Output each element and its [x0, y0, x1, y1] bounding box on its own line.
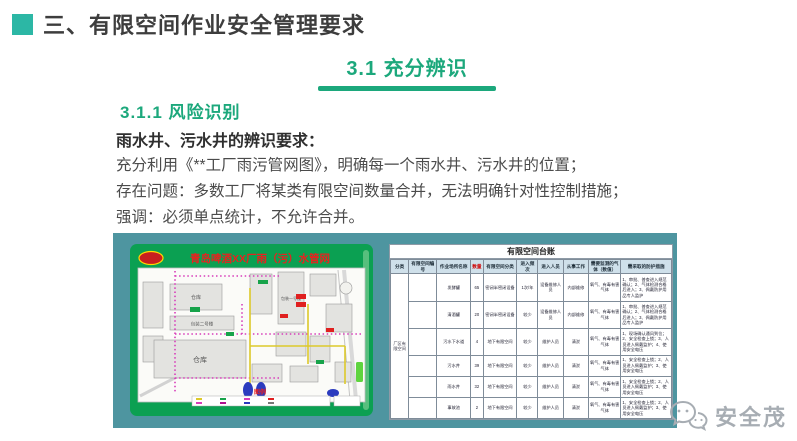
slide-header: 三、有限空间作业安全管理要求: [12, 8, 365, 40]
table-cell: 设备维修人员: [538, 301, 563, 328]
table-cell: 氧气、有毒有害气体: [589, 274, 621, 301]
ledger-col-header: 从事工作: [563, 260, 588, 274]
table-row: 事故池2地下有限空间较少维护人员清淤氧气、有毒有害气体1、安全检查上锁；2、人员…: [391, 397, 672, 418]
table-cell: [409, 355, 437, 376]
ledger-col-header: 作业场所名称: [437, 260, 471, 274]
table-cell: 65: [471, 274, 484, 301]
table-cell: 清淤: [563, 376, 588, 397]
table-row: 雨水井32地下有限空间较少维护人员清淤氧气、有毒有害气体1、安全检查上锁；2、人…: [391, 376, 672, 397]
table-cell: [409, 274, 437, 301]
table-cell: [409, 376, 437, 397]
ledger-col-header: 需要监测的气体（数值）: [589, 260, 621, 274]
table-cell: 1次/年: [517, 274, 538, 301]
chat-bubbles-icon: [669, 399, 709, 433]
table-cell: 污水下水道: [437, 328, 471, 355]
table-cell: 较少: [517, 328, 538, 355]
table-cell: 2: [471, 397, 484, 418]
table-cell: 较少: [517, 355, 538, 376]
table-row: 清酒罐20密闭半密闭设备较少设备维修人员内部维修氧气、有毒有害气体1、审批、普查…: [391, 301, 672, 328]
ledger-col-header: 分类: [391, 260, 409, 274]
ledger-col-header: 进入人员: [538, 260, 563, 274]
legend-box: [192, 396, 330, 406]
slide-title: 三、有限空间作业安全管理要求: [43, 8, 365, 40]
table-row: 污水井39地下有限空间较少维护人员清淤氧气、有毒有害气体1、安全检查上锁；2、人…: [391, 355, 672, 376]
title-bullet-square: [12, 14, 33, 35]
table-cell: 维护人员: [538, 355, 563, 376]
subsection-title: 3.1.1 风险识别: [120, 98, 706, 123]
image-panel: 青岛啤酒XX厂雨（污）水管网: [113, 233, 677, 428]
ledger-header-row: 分类有限空间编号作业场所名称数量有限空间分类进入频次进入人员从事工作需要监测的气…: [391, 260, 672, 274]
table-cell: 1、安全检查上锁；2、人员进入佩戴监护；3、使用安全电压: [621, 355, 672, 376]
table-row: 污水下水道4地下有限空间较少维护人员清淤氧气、有毒有害气体1、现场确认通风到位；…: [391, 328, 672, 355]
table-cell: 32: [471, 376, 484, 397]
map-title: 青岛啤酒XX厂雨（污）水管网: [190, 252, 330, 265]
table-cell: 雨水井: [437, 376, 471, 397]
table-cell: 清酒罐: [437, 301, 471, 328]
table-cell: 清淤: [563, 397, 588, 418]
legend-title: 图例: [254, 388, 266, 396]
table-cell: 维护人员: [538, 328, 563, 355]
factory-map-svg: 青岛啤酒XX厂雨（污）水管网: [130, 244, 373, 416]
table-cell: [409, 301, 437, 328]
ledger-table: 有限空间台账 分类有限空间编号作业场所名称数量有限空间分类进入频次进入人员从事工…: [389, 244, 673, 420]
table-cell: 地下有限空间: [483, 376, 517, 397]
table-cell: 39: [471, 355, 484, 376]
table-cell: 密闭半密闭设备: [483, 301, 517, 328]
table-cell: 1、审批、普查进入规范确认；2、气体检测合格后进入；3、佩戴防护用品专人监护: [621, 301, 672, 328]
body-line: 强调：必须单点统计，不允许合并。: [116, 205, 706, 231]
brand-footer: 安全茂: [669, 399, 787, 433]
building-label: 仓库: [191, 294, 201, 301]
table-cell: 20: [471, 301, 484, 328]
table-row: 厂区有限空间发酵罐65密闭半密闭设备1次/年设备维修人员内部维修氧气、有毒有害气…: [391, 274, 672, 301]
section-underline: [318, 86, 496, 91]
table-cell: 氧气、有毒有害气体: [589, 301, 621, 328]
table-cell: 污水井: [437, 355, 471, 376]
category-cell: 厂区有限空间: [391, 274, 409, 419]
table-cell: 较少: [517, 376, 538, 397]
table-cell: [409, 328, 437, 355]
table-cell: 1、安全检查上锁；2、人员进入佩戴监护；3、使用安全电压: [621, 397, 672, 418]
table-cell: 地下有限空间: [483, 355, 517, 376]
ledger-col-header: 有限空间编号: [409, 260, 437, 274]
table-cell: 密闭半密闭设备: [483, 274, 517, 301]
table-cell: 1、审批、普查进入规范确认；2、气体检测合格后进入；3、佩戴防护用品专人监护: [621, 274, 672, 301]
building-label: 仓库: [193, 355, 207, 364]
body-block: 3.1.1 风险识别 雨水井、污水井的辨识要求： 充分利用《**工厂雨污管网图》…: [116, 98, 706, 231]
table-cell: 较少: [517, 301, 538, 328]
table-cell: 设备维修人员: [538, 274, 563, 301]
table-cell: 4: [471, 328, 484, 355]
body-lead: 雨水井、污水井的辨识要求：: [116, 127, 706, 151]
ledger-grid: 分类有限空间编号作业场所名称数量有限空间分类进入频次进入人员从事工作需要监测的气…: [390, 259, 672, 419]
building-label: 包装二号楼: [191, 321, 214, 328]
ledger-col-header: 进入频次: [517, 260, 538, 274]
table-cell: 氧气、有毒有害气体: [589, 328, 621, 355]
table-cell: 发酵罐: [437, 274, 471, 301]
factory-map-image: 青岛啤酒XX厂雨（污）水管网: [130, 244, 373, 416]
table-cell: 清淤: [563, 355, 588, 376]
table-cell: 较少: [517, 397, 538, 418]
table-cell: 1、安全检查上锁；2、人员进入佩戴监护；3、使用安全电压: [621, 376, 672, 397]
table-cell: [409, 397, 437, 418]
table-cell: 地下有限空间: [483, 328, 517, 355]
ledger-col-header: 有限空间分类: [483, 260, 517, 274]
table-cell: 维护人员: [538, 397, 563, 418]
ledger-col-header: 需采取的防护措施: [621, 260, 672, 274]
body-line: 充分利用《**工厂雨污管网图》，明确每一个雨水井、污水井的位置；: [116, 153, 706, 179]
table-cell: 事故池: [437, 397, 471, 418]
ledger-col-header: 数量: [471, 260, 484, 274]
table-cell: 氧气、有毒有害气体: [589, 376, 621, 397]
table-cell: 地下有限空间: [483, 397, 517, 418]
legend-box-2: [334, 396, 360, 406]
brand-name: 安全茂: [715, 400, 787, 432]
section-heading: 3.1 充分辨识: [318, 52, 496, 91]
table-cell: 内部维修: [563, 301, 588, 328]
slide: 三、有限空间作业安全管理要求 3.1 充分辨识 3.1.1 风险识别 雨水井、污…: [0, 0, 797, 441]
table-cell: 清淤: [563, 328, 588, 355]
table-cell: 维护人员: [538, 376, 563, 397]
brewery-logo: [139, 252, 163, 265]
table-cell: 1、现场确认通风到位；2、安全检查上锁；3、人员进入佩戴监护；4、使用安全电压: [621, 328, 672, 355]
table-cell: 氧气、有毒有害气体: [589, 355, 621, 376]
table-cell: 氧气、有毒有害气体: [589, 397, 621, 418]
table-cell: 内部维修: [563, 274, 588, 301]
body-line: 存在问题：多数工厂将某类有限空间数量合并，无法明确针对性控制措施；: [116, 179, 706, 205]
section-title: 3.1 充分辨识: [318, 52, 496, 81]
ledger-title: 有限空间台账: [390, 245, 672, 259]
